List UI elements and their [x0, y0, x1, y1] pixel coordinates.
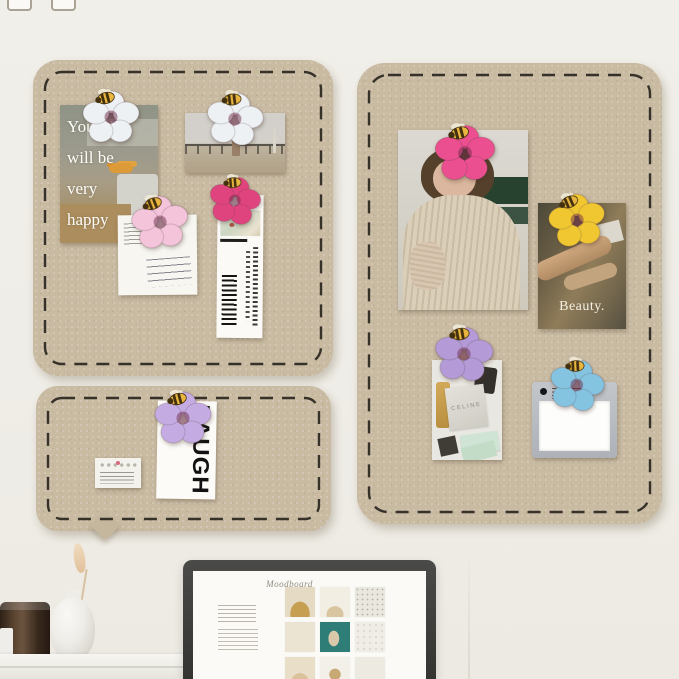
ticket-pink-dot — [116, 461, 120, 465]
wall-seam-line — [468, 544, 470, 679]
pin-board-right: Beauty. CELINE — [357, 63, 662, 524]
ticket-note — [95, 458, 141, 488]
fashion-dark-item — [437, 435, 459, 456]
light-pink-flower-pin-icon — [125, 189, 195, 253]
grid-tile — [285, 587, 315, 617]
kitchen-text-line: very — [67, 173, 127, 204]
screen-text-paragraph — [218, 629, 258, 653]
bookmark-vertical-text — [252, 247, 258, 327]
beach-lamp-post — [273, 129, 276, 153]
bookmark-barcode — [221, 275, 236, 327]
monitor-screen: Moodboard — [193, 571, 426, 679]
book-stack — [0, 654, 210, 679]
grid-tile — [285, 622, 315, 652]
product-photo-scene: Your life will be very happy — [0, 0, 679, 679]
bookmark-divider — [220, 239, 247, 242]
dried-grass-stem — [80, 569, 87, 603]
screen-text-paragraph — [218, 605, 256, 622]
moodboard-grid — [285, 587, 385, 679]
portrait-hand — [410, 242, 445, 291]
hot-pink-flower-pin-icon — [431, 121, 499, 183]
watermark-icon-2 — [51, 0, 76, 11]
grid-tile — [355, 587, 385, 617]
monitor: Moodboard — [183, 560, 436, 679]
bookmark-vertical-text — [246, 251, 251, 321]
grid-tile — [320, 587, 350, 617]
book-edge — [0, 666, 210, 668]
deep-pink-flower-pin-icon — [202, 168, 268, 230]
pin-board-small: LAUGH — [36, 386, 331, 531]
yellow-flower-pin-icon — [541, 186, 612, 252]
watermark-icon-1 — [7, 0, 32, 11]
board-speech-tail — [89, 509, 120, 540]
fashion-packaging: CELINE — [445, 384, 489, 430]
white-flower-pin-icon — [79, 87, 143, 145]
beauty-card-text: Beauty. — [538, 299, 626, 315]
lilac-flower-pin-icon — [151, 388, 215, 446]
grid-tile — [355, 657, 385, 679]
candle-jar-rim — [0, 602, 50, 610]
kitchen-text-line: will be — [67, 142, 127, 173]
grid-tile — [320, 622, 350, 652]
grid-tile — [355, 622, 385, 652]
grid-tile — [320, 657, 350, 679]
ticket-text — [100, 472, 134, 484]
note-handwriting — [146, 256, 192, 287]
white-vase — [50, 597, 95, 661]
purple-flower-pin-icon — [429, 320, 500, 386]
white-flower-pin-icon — [199, 85, 270, 151]
fashion-brand-label: CELINE — [451, 402, 482, 413]
pin-board-left: Your life will be very happy — [33, 60, 333, 376]
grid-tile — [285, 657, 315, 679]
